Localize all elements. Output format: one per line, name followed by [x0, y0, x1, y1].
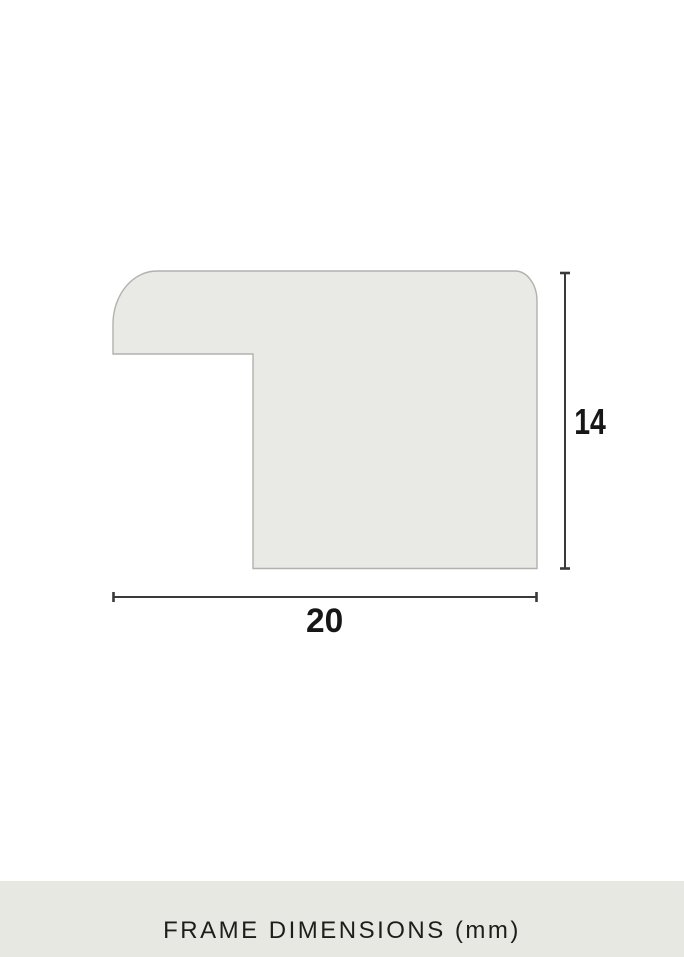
svg-text:14: 14 — [574, 402, 606, 442]
svg-text:20: 20 — [306, 602, 343, 640]
